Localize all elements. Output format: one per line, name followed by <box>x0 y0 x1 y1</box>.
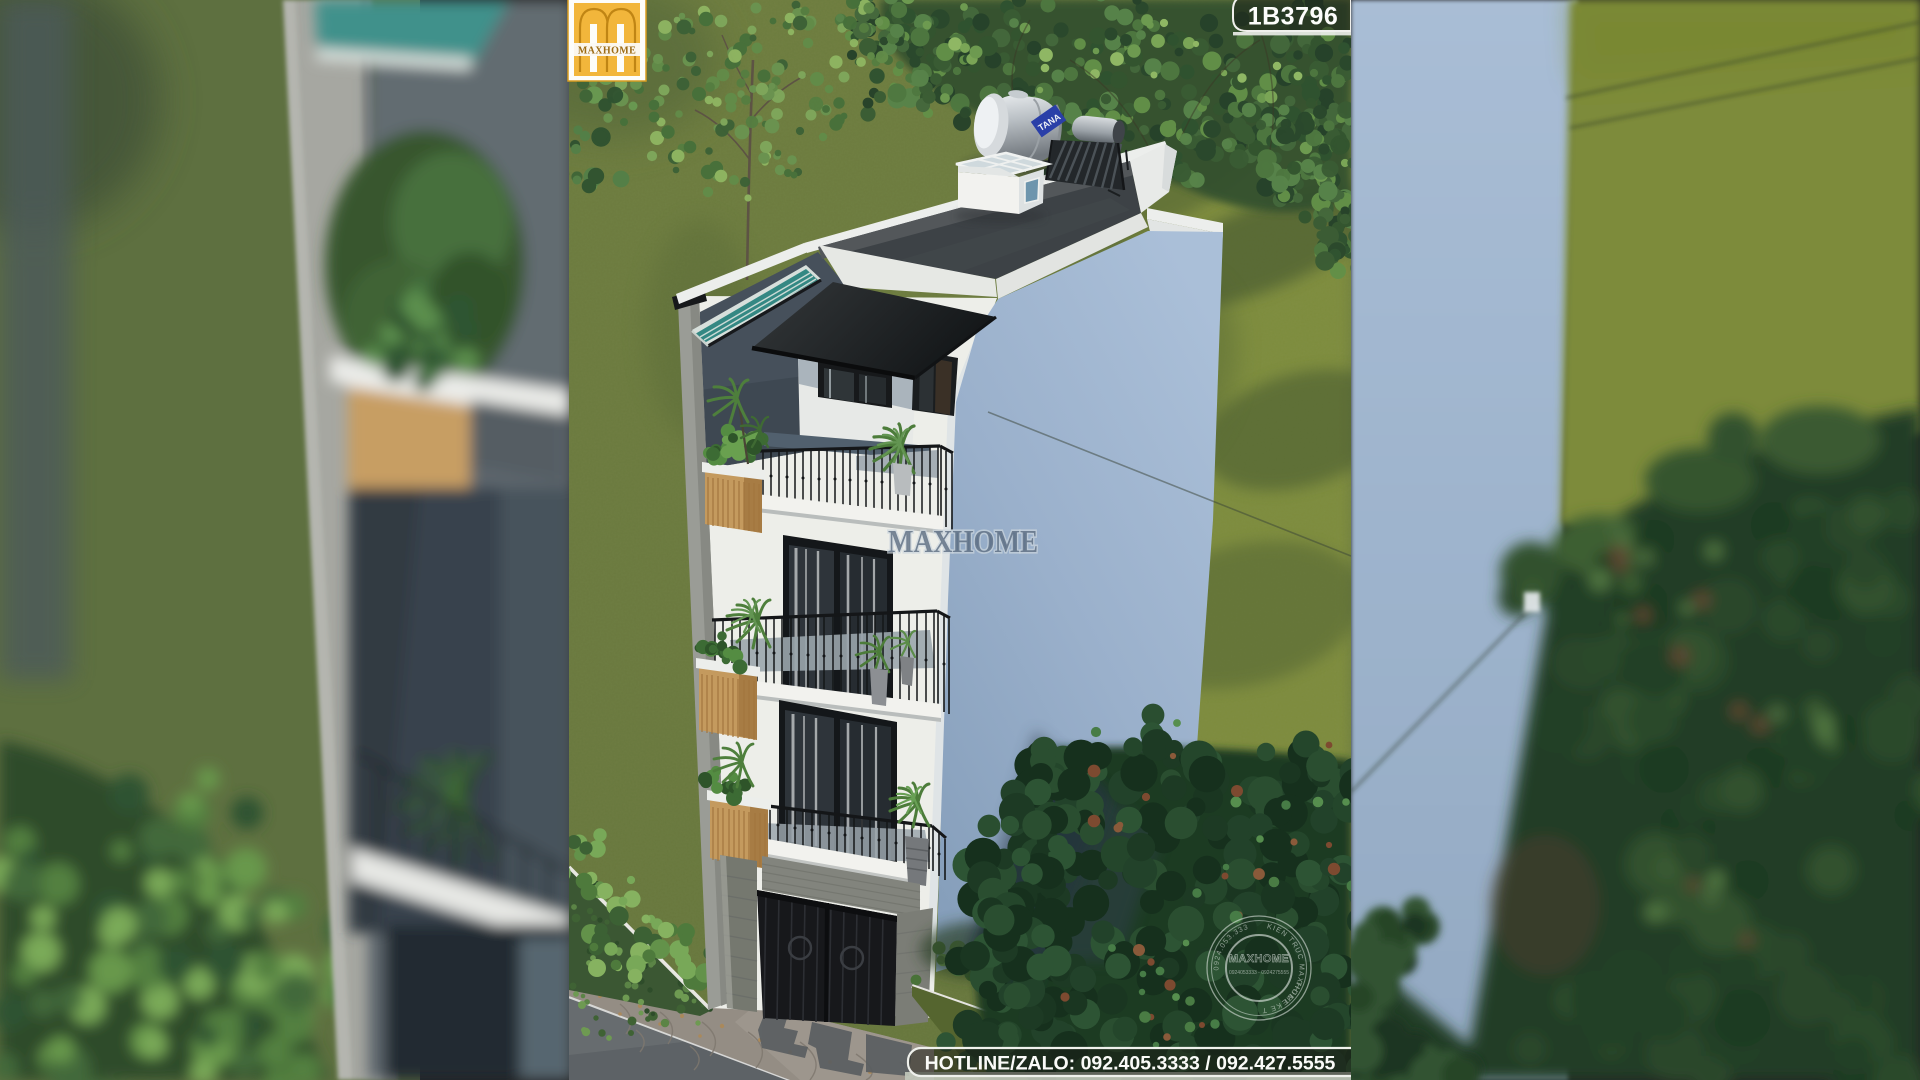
svg-text:MAXHOME: MAXHOME <box>888 524 1038 559</box>
svg-text:MAXHOME: MAXHOME <box>1229 953 1289 965</box>
svg-text:1B3796: 1B3796 <box>1248 3 1339 31</box>
svg-text:0924053333 - 0924275555: 0924053333 - 0924275555 <box>1229 970 1289 976</box>
svg-text:MAXHOME: MAXHOME <box>578 46 636 57</box>
svg-text:HOTLINE/ZALO: 092.405.3333 / 0: HOTLINE/ZALO: 092.405.3333 / 092.427.555… <box>925 1053 1336 1075</box>
